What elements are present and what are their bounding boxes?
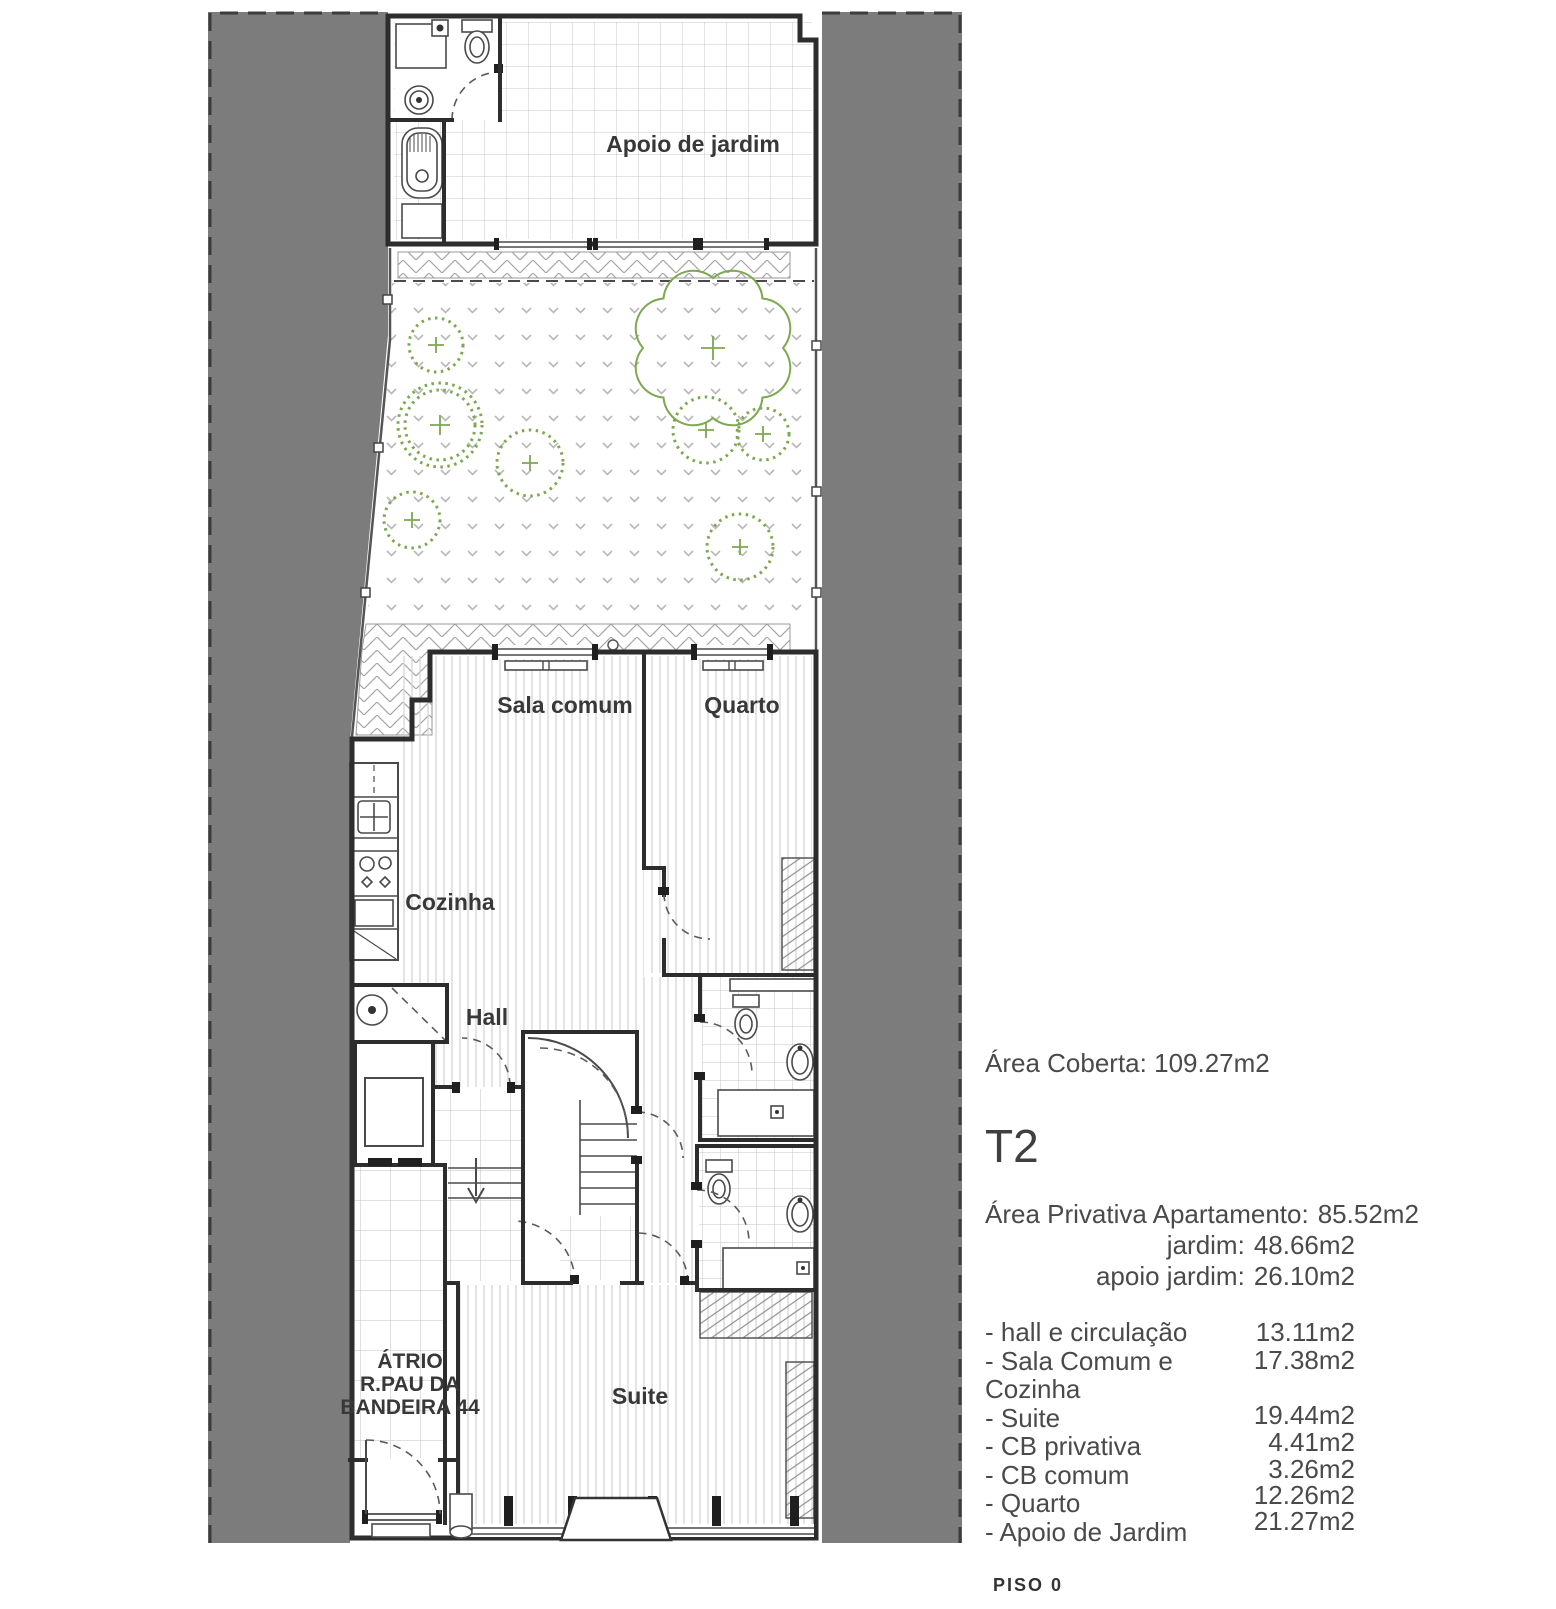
room-area-label: - Suite: [985, 1404, 1060, 1433]
bathtub-drain: [416, 170, 428, 182]
room-area-label: - CB privativa: [985, 1432, 1141, 1461]
corridor-floorboards: [641, 977, 695, 1283]
kitchen-cabinet: [355, 900, 393, 926]
area-coberta-label: Área Coberta:: [985, 1048, 1147, 1078]
area-coberta-value: 109.27m2: [1154, 1048, 1270, 1078]
lobby-tiles: [435, 1089, 521, 1281]
elevator: [355, 1042, 433, 1166]
entry-pillar: [450, 1494, 472, 1530]
floorplan-page: Apoio de jardim Sala comum Quarto Cozinh…: [0, 0, 1556, 1609]
door-bay: [561, 1498, 671, 1540]
neighbor-right-mass: [822, 12, 962, 1543]
room-area-row: - hall e circulação13.11m2: [985, 1318, 1355, 1347]
bathroom-cb-comum: [700, 975, 816, 1140]
bath-cabinet: [402, 204, 442, 238]
label-suite: Suite: [612, 1383, 668, 1409]
suite-wardrobe-right: [786, 1362, 814, 1518]
private-area-value: 85.52m2: [1318, 1199, 1419, 1229]
room-area-value: 4.41m2: [1268, 1428, 1355, 1457]
label-quarto: Quarto: [704, 692, 779, 718]
room-area-label: - Quarto: [985, 1489, 1080, 1518]
room-area-value: 19.44m2: [1254, 1401, 1355, 1430]
room-area-value: 21.27m2: [1254, 1507, 1355, 1536]
label-hall: Hall: [466, 1004, 508, 1030]
garden-drain: [608, 640, 618, 650]
elevator-door-left: [368, 1158, 392, 1166]
cb-comum-shower: [718, 1090, 814, 1136]
suite-wardrobe-top: [700, 1292, 812, 1338]
room-area-label: - Apoio de Jardim: [985, 1518, 1187, 1547]
washbasin-drain: [437, 25, 444, 32]
quarto-window: [691, 644, 773, 670]
room-area-label: - hall e circulação: [985, 1318, 1187, 1347]
private-areas: Área Privativa Apartamento:85.52m2 jardi…: [985, 1199, 1355, 1292]
annex-windows: [494, 238, 769, 250]
cb-priv-toilet-tank: [706, 1160, 732, 1172]
floor-label: PISO 0: [993, 1575, 1063, 1596]
sala-window: [492, 644, 598, 670]
private-area-label: Área Privativa Apartamento:: [985, 1199, 1309, 1229]
room-area-row: - Apoio de Jardim21.27m2: [985, 1518, 1355, 1547]
room-area-value: 3.26m2: [1268, 1455, 1355, 1484]
room-areas-list: - hall e circulação13.11m2 - Sala Comum …: [985, 1318, 1355, 1546]
stair-landing-tiles: [560, 1216, 635, 1280]
area-coberta: Área Coberta: 109.27m2: [985, 1048, 1355, 1079]
label-atrio-line3: BANDEIRA 44: [340, 1396, 480, 1419]
typology-label: T2: [985, 1119, 1355, 1173]
private-area-label: jardim:: [1167, 1230, 1245, 1260]
bathroom-cb-privativa: [697, 1146, 816, 1290]
label-atrio-line1: ÁTRIO: [377, 1350, 442, 1373]
private-area-value: 48.66m2: [1254, 1230, 1355, 1260]
cb-comum-toilet-tank: [733, 995, 759, 1007]
wc-laundry: [352, 985, 447, 1042]
kitchen: [350, 763, 398, 960]
cb-comum-shelf: [730, 979, 816, 991]
info-panel: Área Coberta: 109.27m2 T2 Área Privativa…: [985, 1048, 1355, 1546]
label-cozinha: Cozinha: [405, 889, 495, 915]
private-area-row: jardim:48.66m2: [985, 1230, 1355, 1261]
room-area-value: 13.11m2: [1256, 1318, 1355, 1347]
label-apoio-de-jardim: Apoio de jardim: [606, 131, 780, 157]
quarto-wardrobe: [782, 858, 814, 970]
private-area-label: apoio jardim:: [1096, 1261, 1245, 1291]
private-area-value: 26.10m2: [1254, 1261, 1355, 1291]
room-area-label: - Sala Comum e Cozinha: [985, 1347, 1254, 1404]
label-sala-comum: Sala comum: [497, 692, 633, 718]
room-area-row: - Sala Comum e Cozinha17.38m2: [985, 1347, 1355, 1404]
garden-paving-top: [398, 252, 790, 278]
room-area-label: - CB comum: [985, 1461, 1129, 1490]
room-area-value: 17.38m2: [1254, 1346, 1355, 1403]
private-area-row: apoio jardim:26.10m2: [985, 1261, 1355, 1292]
label-atrio-line2: R.PAU DA: [360, 1373, 460, 1396]
elevator-door-right: [398, 1158, 422, 1166]
private-area-row: Área Privativa Apartamento:85.52m2: [985, 1199, 1355, 1230]
